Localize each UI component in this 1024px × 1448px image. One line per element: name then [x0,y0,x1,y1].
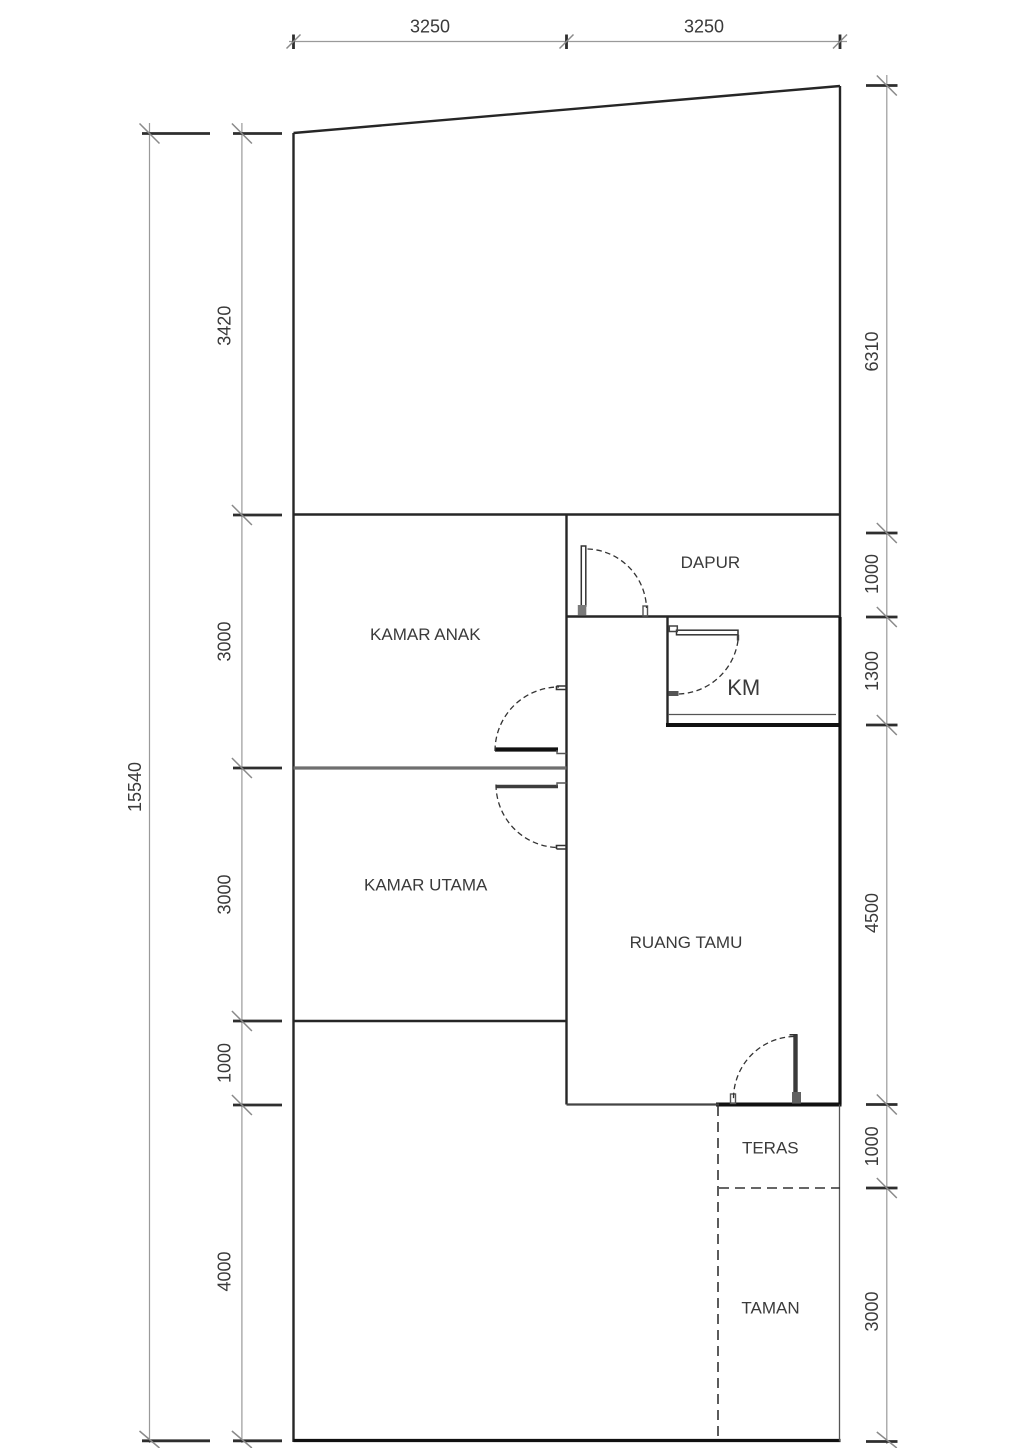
svg-text:3000: 3000 [215,621,235,661]
svg-text:6310: 6310 [862,331,882,371]
svg-text:KAMAR ANAK: KAMAR ANAK [370,625,481,644]
svg-text:1300: 1300 [862,651,882,691]
svg-text:1000: 1000 [862,1126,882,1166]
svg-text:4500: 4500 [862,893,882,933]
svg-text:3000: 3000 [215,874,235,914]
svg-text:DAPUR: DAPUR [681,553,741,572]
svg-text:3250: 3250 [684,17,724,37]
svg-text:3420: 3420 [215,306,235,346]
svg-text:KAMAR UTAMA: KAMAR UTAMA [364,875,488,894]
svg-text:RUANG TAMU: RUANG TAMU [630,933,743,952]
svg-text:3250: 3250 [410,17,450,37]
svg-text:4000: 4000 [215,1251,235,1291]
svg-text:15540: 15540 [125,762,145,812]
svg-text:1000: 1000 [862,554,882,594]
svg-text:1000: 1000 [215,1043,235,1083]
svg-text:KM: KM [727,675,760,700]
svg-text:TERAS: TERAS [742,1138,799,1157]
svg-text:TAMAN: TAMAN [741,1298,799,1317]
svg-text:3000: 3000 [862,1291,882,1331]
